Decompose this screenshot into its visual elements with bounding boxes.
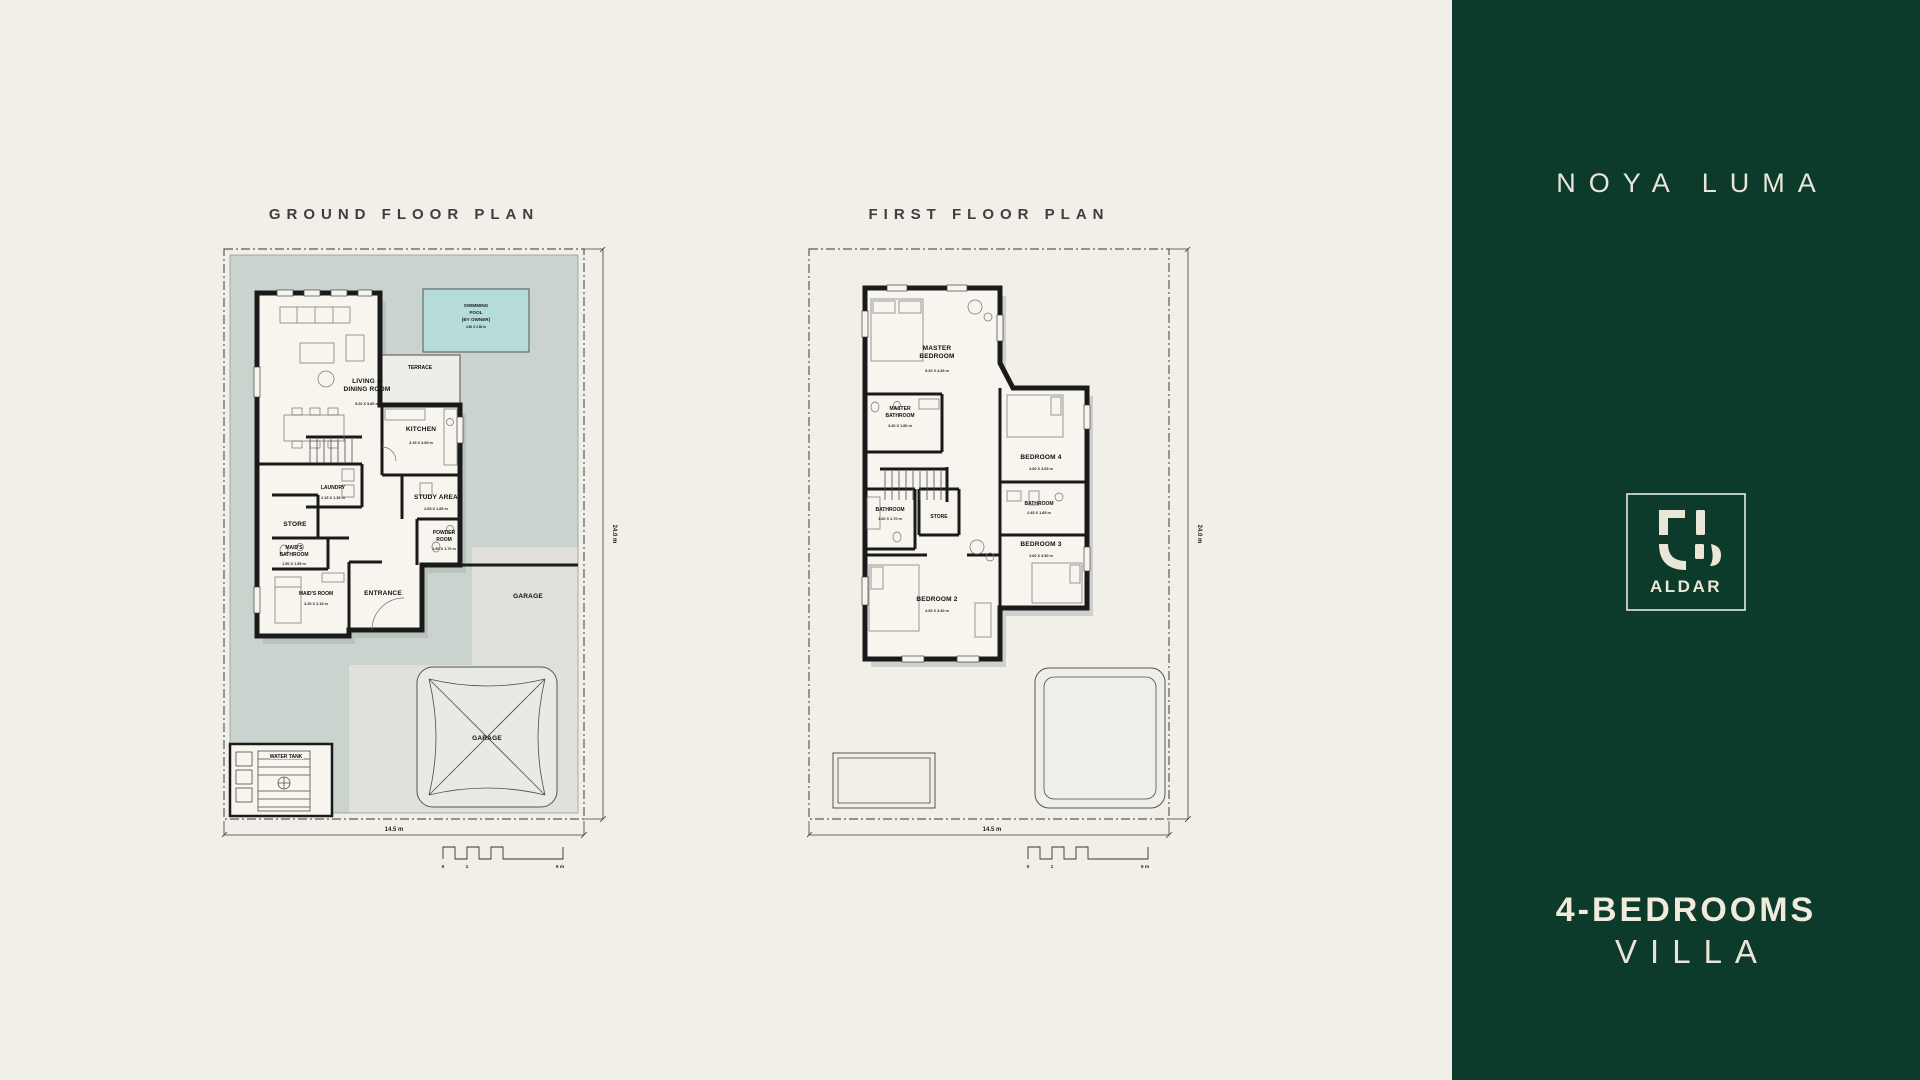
room-label-store: STORE — [283, 521, 307, 528]
room-label-master-2: BEDROOM — [919, 353, 954, 360]
room-label-kitchen: KITCHEN — [406, 426, 436, 433]
aldar-logo-icon: ALDAR — [1625, 492, 1747, 612]
project-name: NOYA LUMA — [1452, 168, 1920, 199]
gf-depth-dim: 24.0 m — [611, 525, 617, 544]
ground-floor-title: GROUND FLOOR PLAN — [222, 206, 586, 223]
gf-terrace-area — [380, 355, 460, 405]
ff-scale-0: 0 — [1027, 864, 1030, 870]
first-floor-title: FIRST FLOOR PLAN — [807, 206, 1171, 223]
room-dim-bathroom-right: 2.45 X 1.85 m — [1027, 511, 1051, 515]
room-dim-kitchen: 3.15 X 3.65 m — [409, 441, 433, 445]
pool-label-line2: POOL — [469, 310, 482, 315]
room-dim-maid: 3.20 X 2.15 m — [304, 602, 328, 606]
room-label-bedroom2: BEDROOM 2 — [916, 596, 957, 603]
aldar-logo: ALDAR — [1625, 492, 1747, 612]
unit-kind: VILLA — [1452, 933, 1920, 971]
room-label-living-1: LIVING & — [352, 378, 382, 385]
room-dim-powder: 1.50 X 1.70 m — [432, 547, 456, 551]
room-label-maidbath-1: MAID'S — [285, 545, 303, 551]
room-label-powder-2: ROOM — [436, 537, 452, 543]
gf-water-tank: WATER TANK — [230, 744, 332, 816]
room-label-entrance: ENTRANCE — [364, 590, 402, 597]
room-label-garage-side: GARAGE — [513, 593, 543, 600]
room-label-master-1: MASTER — [923, 345, 952, 352]
room-label-bedroom3: BEDROOM 3 — [1020, 541, 1061, 548]
room-dim-bedroom4: 3.60 X 3.65 m — [1029, 467, 1053, 471]
aldar-logo-text: ALDAR — [1650, 577, 1722, 596]
ff-house: MASTER BEDROOM 5.20 X 4.45 m MASTER BATH… — [862, 285, 1093, 667]
room-dim-laundry: 2.15 X 1.35 m — [321, 496, 345, 500]
room-label-maidbath-2: BATHROOM — [279, 552, 308, 558]
room-dim-maidbath: 1.50 X 1.55 m — [282, 562, 306, 566]
ff-canopy — [1035, 668, 1165, 808]
gf-scale-bar: 0 1 5 m — [442, 847, 564, 870]
room-label-study: STUDY AREA — [414, 494, 458, 501]
gf-scale-1: 1 — [466, 864, 469, 870]
unit-type: 4-BEDROOMS — [1452, 891, 1920, 930]
room-dim-masterbath: 3.40 X 1.80 m — [888, 424, 912, 428]
ff-scale-bar: 0 1 5 m — [1027, 847, 1149, 870]
brand-panel: NOYA LUMA ALDAR 4-BEDROOMS VILLA — [1452, 0, 1920, 1080]
brochure-page: GROUND FLOOR PLAN SWIMMING POOL (BY OWNE… — [0, 0, 1920, 1080]
room-label-garage-canopy: GARAGE — [472, 735, 502, 742]
room-label-laundry: LAUNDRY — [321, 485, 346, 491]
gf-scale-5: 5 m — [556, 864, 564, 870]
pool-dim: 4.50 X 2.50 m — [466, 325, 486, 329]
room-dim-master: 5.20 X 4.45 m — [925, 369, 949, 373]
room-label-bedroom4: BEDROOM 4 — [1020, 454, 1061, 461]
room-dim-living: 5.20 X 5.80 m — [355, 402, 379, 406]
ff-width-dim: 14.5 m — [983, 827, 1002, 833]
gf-garage-canopy: GARAGE — [417, 667, 557, 807]
room-label-masterbath-2: BATHROOM — [885, 413, 914, 419]
room-label-water-tank: WATER TANK — [270, 754, 303, 760]
gf-scale-0: 0 — [442, 864, 445, 870]
room-label-living-2: DINING ROOM — [344, 386, 391, 393]
pool-label-line3: (BY OWNER) — [462, 317, 491, 322]
ground-floor-plan-drawing: SWIMMING POOL (BY OWNER) 4.50 X 2.50 m — [222, 247, 622, 892]
room-dim-bedroom3: 3.60 X 3.50 m — [1029, 554, 1053, 558]
room-label-bathroom-left: BATHROOM — [875, 507, 904, 513]
room-dim-study: 2.65 X 1.85 m — [424, 507, 448, 511]
pool-label-line1: SWIMMING — [464, 303, 489, 308]
gf-swimming-pool: SWIMMING POOL (BY OWNER) 4.50 X 2.50 m — [423, 289, 529, 352]
gf-width-dim: 14.5 m — [385, 827, 404, 833]
room-label-powder-1: POWDER — [433, 530, 456, 536]
room-label-bathroom-right: BATHROOM — [1024, 501, 1053, 507]
room-label-terrace: TERRACE — [408, 365, 433, 371]
ff-scale-5: 5 m — [1141, 864, 1149, 870]
ff-scale-1: 1 — [1051, 864, 1054, 870]
room-label-maid: MAID'S ROOM — [299, 591, 333, 597]
room-label-masterbath-1: MASTER — [889, 406, 911, 412]
ff-entry-pad — [833, 753, 935, 808]
first-floor-plan-drawing: MASTER BEDROOM 5.20 X 4.45 m MASTER BATH… — [807, 247, 1207, 892]
room-dim-bedroom2: 4.65 X 3.40 m — [925, 609, 949, 613]
room-label-ff-store: STORE — [930, 514, 948, 520]
ff-depth-dim: 24.0 m — [1196, 525, 1202, 544]
room-dim-bathroom-left: 1.60 X 2.70 m — [878, 517, 902, 521]
